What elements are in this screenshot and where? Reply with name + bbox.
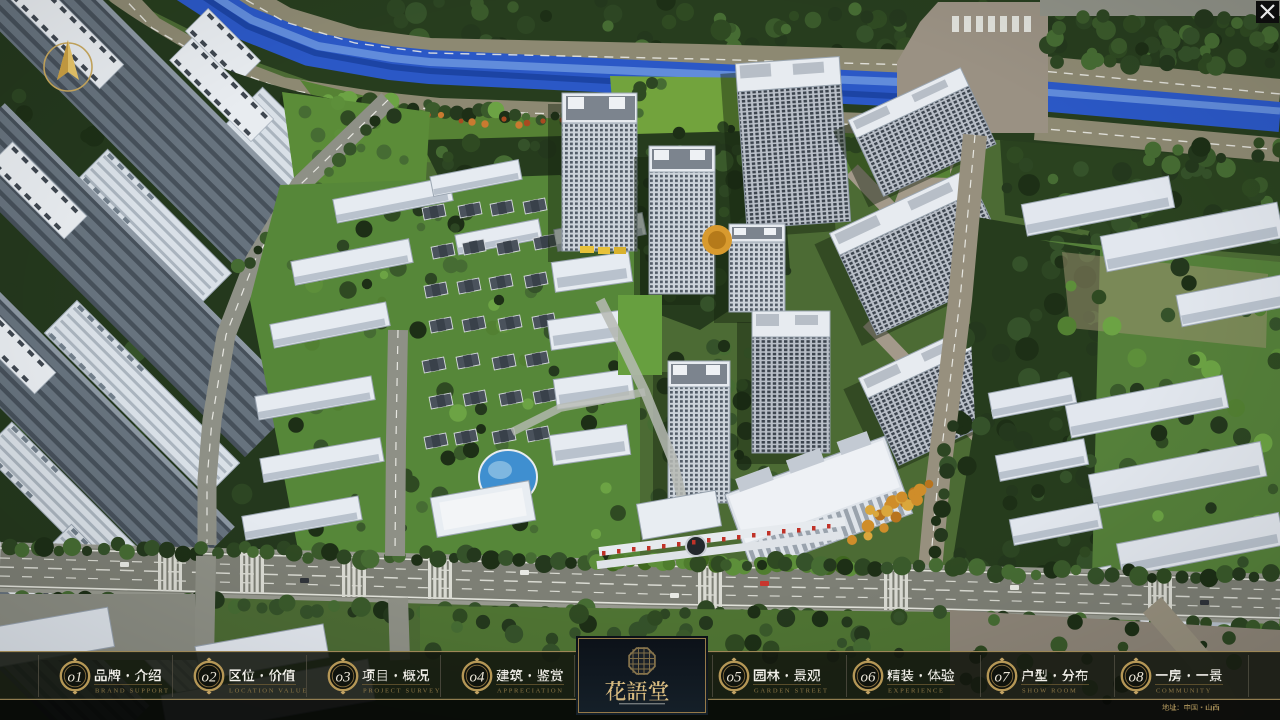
svg-text:o3: o3	[336, 670, 351, 686]
svg-text:BRAND SUPPORT: BRAND SUPPORT	[95, 688, 170, 695]
svg-text:GARDEN STREET: GARDEN STREET	[754, 688, 829, 695]
svg-text:SHOW ROOM: SHOW ROOM	[1022, 688, 1077, 695]
svg-text:EXPERIENCE: EXPERIENCE	[888, 688, 945, 695]
svg-text:o8: o8	[1129, 670, 1145, 686]
svg-text:COMMUNITY: COMMUNITY	[1156, 688, 1212, 695]
svg-text:o6: o6	[861, 670, 877, 686]
svg-text:LOCATION VALUE: LOCATION VALUE	[229, 688, 308, 695]
svg-text:o7: o7	[995, 670, 1012, 686]
svg-text:o2: o2	[202, 670, 218, 686]
svg-text:o5: o5	[727, 670, 743, 686]
svg-text:o1: o1	[68, 670, 83, 686]
svg-text:APPRECIATION: APPRECIATION	[497, 688, 564, 695]
svg-text:PROJECT SURVEY: PROJECT SURVEY	[363, 688, 441, 695]
svg-text:o4: o4	[470, 670, 486, 686]
